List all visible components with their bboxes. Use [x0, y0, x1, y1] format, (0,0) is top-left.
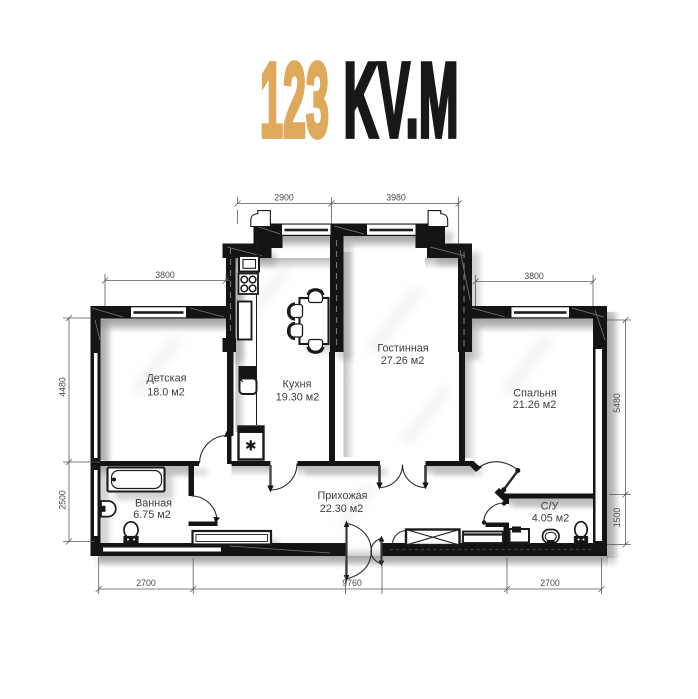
svg-text:Гостинная: Гостинная	[377, 343, 428, 355]
svg-text:22.30 м2: 22.30 м2	[320, 503, 363, 515]
svg-text:2900: 2900	[274, 193, 294, 203]
svg-text:2500: 2500	[58, 490, 68, 510]
svg-text:Кухня: Кухня	[283, 379, 312, 391]
svg-text:3800: 3800	[155, 270, 175, 280]
svg-text:Спальня: Спальня	[513, 388, 557, 400]
svg-text:1500: 1500	[612, 508, 622, 528]
svg-text:21.26 м2: 21.26 м2	[513, 399, 556, 411]
svg-text:4.05 м2: 4.05 м2	[532, 513, 569, 525]
svg-text:2700: 2700	[136, 578, 156, 588]
svg-text:✱: ✱	[245, 438, 257, 454]
svg-text:27.26 м2: 27.26 м2	[381, 355, 424, 367]
svg-text:Детская: Детская	[147, 373, 187, 385]
svg-text:С/У: С/У	[541, 500, 559, 512]
svg-text:KV.M: KV.M	[344, 42, 459, 160]
svg-text:4480: 4480	[58, 377, 68, 397]
svg-text:2700: 2700	[540, 578, 560, 588]
svg-text:9760: 9760	[342, 578, 362, 588]
svg-text:123: 123	[260, 42, 329, 160]
svg-text:Прихожая: Прихожая	[317, 490, 367, 502]
svg-text:19.30 м2: 19.30 м2	[276, 392, 319, 404]
svg-text:Ванная: Ванная	[135, 498, 172, 510]
svg-text:3980: 3980	[386, 193, 406, 203]
svg-text:18.0 м2: 18.0 м2	[147, 387, 184, 399]
svg-text:6.75 м2: 6.75 м2	[133, 509, 170, 521]
svg-text:3800: 3800	[524, 271, 544, 281]
svg-text:5480: 5480	[612, 393, 622, 413]
